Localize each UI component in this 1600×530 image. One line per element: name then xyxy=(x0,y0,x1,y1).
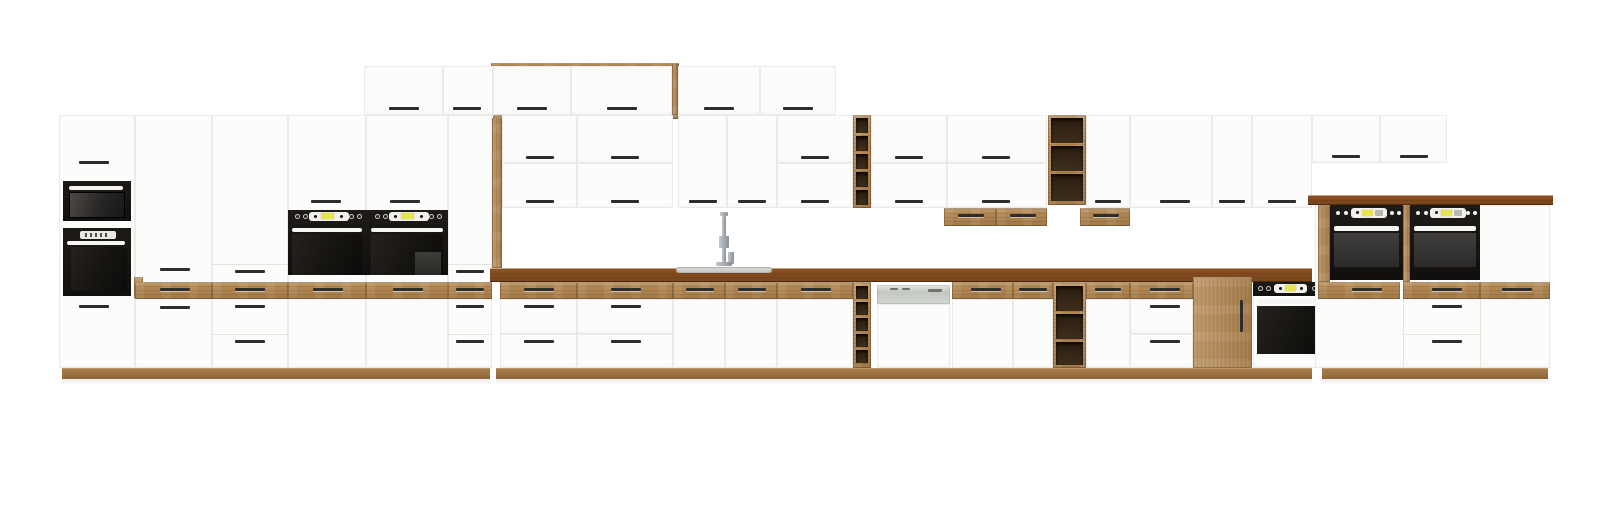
base-cabinet-door xyxy=(952,299,1013,368)
oven-glass-gray xyxy=(1414,233,1476,267)
rack-cubby xyxy=(856,286,868,299)
oven-panel-dot-white xyxy=(1416,211,1420,215)
door-handle xyxy=(611,200,639,203)
sink-rim xyxy=(676,267,772,273)
door-handle xyxy=(79,305,109,308)
drawer-handle xyxy=(1150,305,1180,308)
oven-handle-bar xyxy=(1414,226,1476,231)
door-handle xyxy=(1160,200,1190,203)
rack-cubby xyxy=(856,154,868,169)
floor-shadow xyxy=(496,379,1312,384)
faucet-body xyxy=(719,236,729,248)
oven-handle-bar xyxy=(1334,226,1399,231)
shelf-cubby xyxy=(1051,146,1083,171)
door-handle xyxy=(517,107,547,110)
oven-knob-ring xyxy=(357,214,362,219)
rack-cubby xyxy=(856,118,868,133)
oven-panel-dot xyxy=(1356,211,1359,214)
oven-panel-dot xyxy=(394,215,397,218)
drawer-handle xyxy=(1150,340,1180,343)
dishwasher-recess xyxy=(928,289,942,292)
drawer-handle xyxy=(1150,288,1180,291)
drawer-handle xyxy=(235,288,265,291)
door-handle xyxy=(311,200,341,203)
dishwasher-control-strip xyxy=(877,285,950,304)
drawer-handle xyxy=(456,305,484,308)
rack-cubby xyxy=(856,350,868,363)
drawer-seam xyxy=(448,264,492,265)
floor-shadow xyxy=(1322,379,1548,384)
oven-display-yellow xyxy=(401,213,414,219)
drawer-handle xyxy=(235,305,265,308)
drawer-handle xyxy=(235,340,265,343)
rack-cubby xyxy=(856,302,868,315)
drawer-handle xyxy=(524,305,554,308)
oven-panel-dot xyxy=(420,215,423,218)
oven-panel-dot-white xyxy=(1390,211,1394,215)
oven-panel-dot xyxy=(1435,211,1438,214)
door-handle xyxy=(611,156,639,159)
drawer-seam xyxy=(448,334,492,335)
plinth-base-run xyxy=(496,368,1312,379)
door-handle xyxy=(453,107,481,110)
drawer-handle xyxy=(1019,288,1047,291)
door-handle xyxy=(160,306,190,309)
door-handle xyxy=(982,200,1010,203)
door-handle xyxy=(1268,200,1296,203)
oven-knob-ring xyxy=(375,214,380,219)
drawer-seam xyxy=(212,334,288,335)
oven-handle-bar xyxy=(67,241,125,245)
drawer-seam xyxy=(212,264,288,265)
drawer-handle xyxy=(958,214,984,217)
oven-glass xyxy=(71,247,127,291)
dishwasher-door xyxy=(877,304,950,368)
drawer-handle xyxy=(456,270,484,273)
drawer-handle xyxy=(611,305,641,308)
oven-knob-ring xyxy=(303,214,308,219)
rack-cubby xyxy=(856,334,868,347)
dishwasher-button xyxy=(890,288,898,290)
door-handle xyxy=(801,200,829,203)
oven-knob-ring xyxy=(383,214,388,219)
pantry-vertical-handle xyxy=(1240,300,1243,332)
oven-panel-dot xyxy=(1300,287,1303,290)
drawer-handle xyxy=(456,288,484,291)
door-handle xyxy=(607,107,637,110)
drawer-handle xyxy=(801,288,831,291)
drawer-handle xyxy=(1432,340,1462,343)
faucet-base xyxy=(716,262,732,266)
under-cabinet-drawer xyxy=(1080,208,1130,226)
faucet-head xyxy=(720,212,728,216)
floor-shadow xyxy=(62,379,490,384)
wall-cabinet-door xyxy=(1086,115,1130,208)
drawer-handle xyxy=(1352,288,1382,291)
door-handle xyxy=(895,156,923,159)
oven-knob-ring xyxy=(1258,286,1263,291)
oven-knob-ring xyxy=(1266,286,1271,291)
drawer-handle xyxy=(313,288,343,291)
oven-knob-gray xyxy=(1375,210,1383,216)
rack-cubby xyxy=(856,190,868,205)
oven-knob-ring xyxy=(349,214,354,219)
drawer-handle xyxy=(160,288,190,291)
island-wood-gap xyxy=(1403,205,1410,282)
door-handle xyxy=(801,156,829,159)
oven-glass xyxy=(292,234,362,275)
shelf-cubby xyxy=(1056,342,1083,365)
drawer-handle xyxy=(524,340,554,343)
shelf-cubby xyxy=(1051,118,1083,143)
door-handle xyxy=(783,107,813,110)
oven-panel-dot xyxy=(314,215,317,218)
tall-drawer-cabinet xyxy=(212,115,288,368)
plinth-island xyxy=(1322,368,1548,379)
oven-knob-ring xyxy=(437,214,442,219)
rack-cubby xyxy=(856,172,868,187)
oven-panel-dot xyxy=(340,215,343,218)
oven-glass-gray xyxy=(1334,233,1399,267)
sink-base-door xyxy=(725,299,777,368)
plinth-left xyxy=(62,368,490,379)
oven-panel-dot-white xyxy=(1336,211,1340,215)
door-handle xyxy=(704,107,734,110)
drawer-handle xyxy=(1432,305,1462,308)
door-handle xyxy=(1219,200,1245,203)
door-handle xyxy=(1400,155,1428,158)
under-cabinet-drawer xyxy=(944,208,996,226)
wall-cabinet-door xyxy=(678,115,727,208)
sink-base-door xyxy=(673,299,725,368)
kitchen-render-canvas xyxy=(0,0,1600,530)
drawer-handle xyxy=(1095,288,1121,291)
drawer-handle xyxy=(1432,288,1462,291)
oven-display-yellow xyxy=(321,213,334,219)
shelf-cubby xyxy=(1056,286,1083,311)
door-handle xyxy=(738,200,766,203)
base-cabinet-door xyxy=(1086,299,1130,368)
tall-cabinet xyxy=(135,115,212,368)
drawer-handle xyxy=(235,270,265,273)
wall-cabinet-door xyxy=(1130,115,1212,208)
rack-cubby xyxy=(856,136,868,151)
oven-handle-bar xyxy=(371,228,443,232)
countertop xyxy=(490,268,1312,282)
under-cabinet-drawer xyxy=(996,208,1047,226)
oven-handle-bar xyxy=(292,228,362,232)
drawer-handle xyxy=(611,340,641,343)
drawer-handle xyxy=(456,340,484,343)
oven-panel-dot-white xyxy=(1466,211,1470,215)
wall-cabinet-door xyxy=(727,115,777,208)
drawer-seam xyxy=(1403,334,1480,335)
door-handle xyxy=(526,200,554,203)
microwave-handle-bar xyxy=(69,186,123,190)
door-handle xyxy=(389,107,419,110)
tall-drawer-cabinet xyxy=(448,115,492,368)
shelf-cubby xyxy=(1051,174,1083,201)
island-countertop xyxy=(1308,195,1553,205)
wall-cabinet-door xyxy=(1252,115,1312,208)
oven-knob-ring xyxy=(295,214,300,219)
wood-pantry-door xyxy=(1193,277,1252,368)
oven-display-yellow xyxy=(1285,285,1296,291)
oven-panel-dot xyxy=(1279,287,1282,290)
oven-panel-dot-white xyxy=(1424,211,1428,215)
door-handle xyxy=(982,156,1010,159)
base-cabinet-door xyxy=(1013,299,1053,368)
door-handle xyxy=(390,200,420,203)
oven-knob-ring xyxy=(429,214,434,219)
oven-panel-dot-white xyxy=(1473,211,1477,215)
microwave-glass xyxy=(69,192,125,218)
door-handle xyxy=(895,200,923,203)
oven-glass-reflection xyxy=(415,252,441,275)
door-handle xyxy=(79,161,109,164)
wall-cabinet-door xyxy=(1212,115,1252,208)
oven-knob-gray xyxy=(1454,210,1462,216)
drawer-handle xyxy=(686,288,714,291)
oven-panel-dot-white xyxy=(1344,211,1348,215)
drawer-handle xyxy=(611,288,641,291)
drawer-handle xyxy=(1010,214,1036,217)
oven-panel-dot-white xyxy=(1397,211,1401,215)
cabinet-seam xyxy=(1480,299,1481,368)
drawer-handle xyxy=(393,288,423,291)
drawer-handle xyxy=(971,288,1001,291)
door-handle xyxy=(689,200,717,203)
rack-cubby xyxy=(856,318,868,331)
oven-display xyxy=(80,231,116,239)
wall-row-wood-side xyxy=(492,118,502,268)
island-wood-stile xyxy=(1318,205,1330,282)
drawer-handle xyxy=(524,288,554,291)
shelf-cubby xyxy=(1056,314,1083,339)
oven-display-yellow xyxy=(1362,210,1373,216)
door-handle xyxy=(1332,155,1360,158)
drawer-handle xyxy=(738,288,766,291)
drawer-handle xyxy=(1502,288,1532,291)
oven-display-yellow xyxy=(1441,210,1452,216)
drawer-handle xyxy=(1093,214,1119,217)
door-handle xyxy=(526,156,554,159)
dishwasher-button xyxy=(902,288,910,290)
door-handle xyxy=(160,268,190,271)
base-cabinet-door xyxy=(777,299,853,368)
door-handle xyxy=(1095,200,1121,203)
